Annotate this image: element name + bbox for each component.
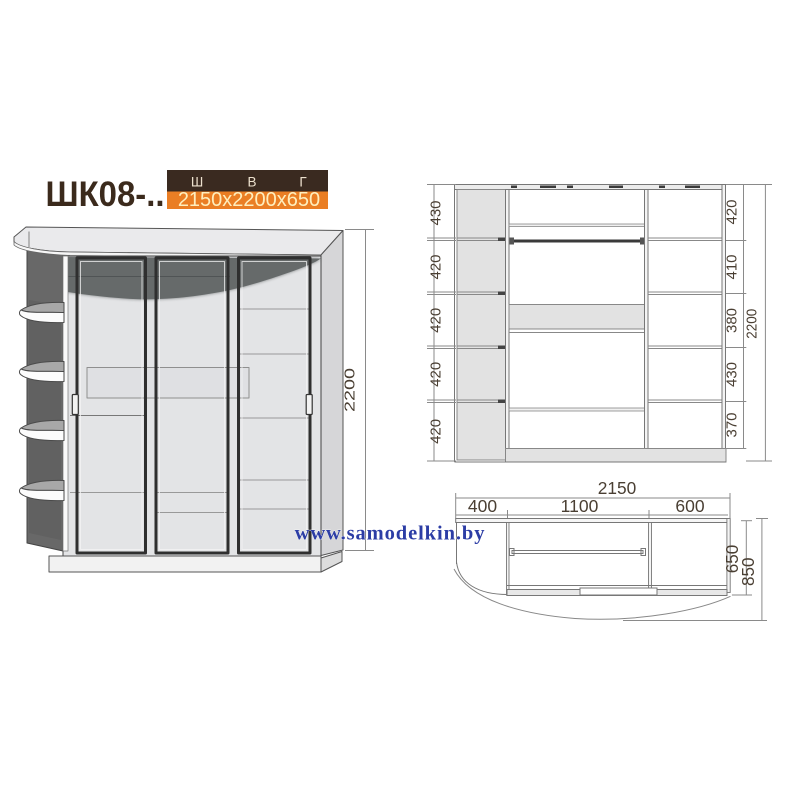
svg-text:380: 380 [723,308,740,333]
svg-text:410: 410 [723,254,740,279]
svg-text:2200: 2200 [743,309,760,339]
svg-text:420: 420 [428,254,445,279]
svg-text:370: 370 [723,412,740,437]
svg-text:420: 420 [428,308,445,333]
svg-text:420: 420 [428,362,445,387]
svg-text:850: 850 [738,557,758,586]
svg-text:400: 400 [468,496,497,516]
svg-text:Ш: Ш [191,175,203,190]
svg-text:420: 420 [723,199,740,224]
svg-text:600: 600 [675,496,704,516]
svg-text:ШК08-..: ШК08-.. [46,174,165,214]
svg-text:430: 430 [428,200,445,225]
svg-text:2150: 2150 [598,478,637,498]
svg-text:2200: 2200 [342,368,359,412]
svg-text:420: 420 [428,419,445,444]
svg-text:2150х2200х650: 2150х2200х650 [178,189,320,211]
svg-text:В: В [247,175,256,190]
svg-text:1100: 1100 [561,496,599,516]
svg-text:430: 430 [723,362,740,387]
svg-text:www.samodelkin.by: www.samodelkin.by [295,523,486,545]
svg-text:Г: Г [299,175,307,190]
